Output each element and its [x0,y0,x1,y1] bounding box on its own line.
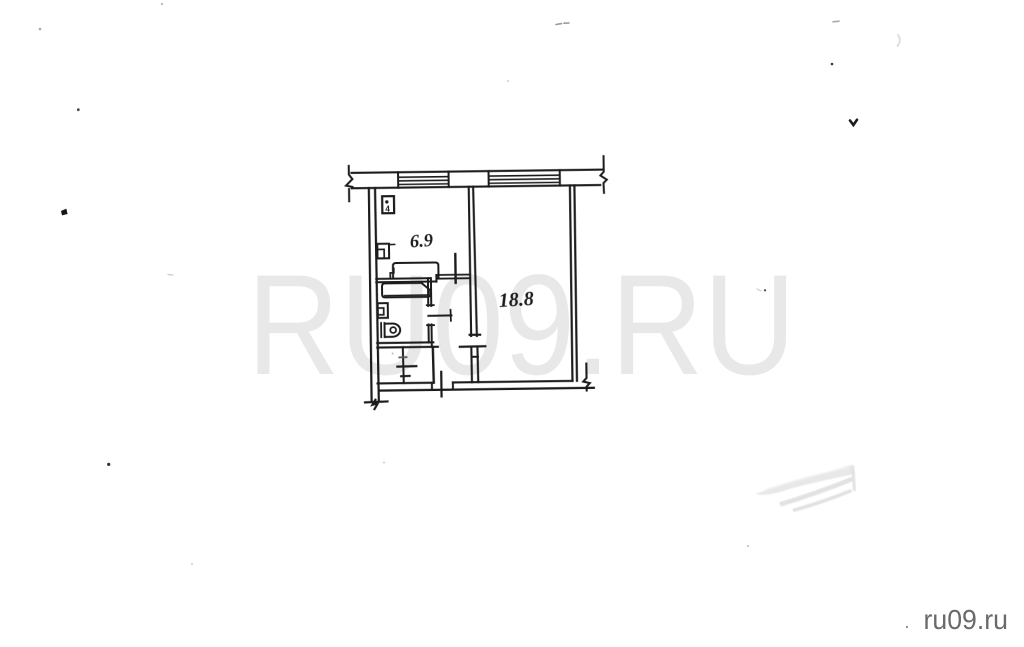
svg-text:18.8: 18.8 [498,288,534,312]
svg-text:ru09.ru: ru09.ru [924,604,1009,635]
svg-text:4: 4 [385,205,390,214]
svg-text:6.9: 6.9 [409,231,433,252]
